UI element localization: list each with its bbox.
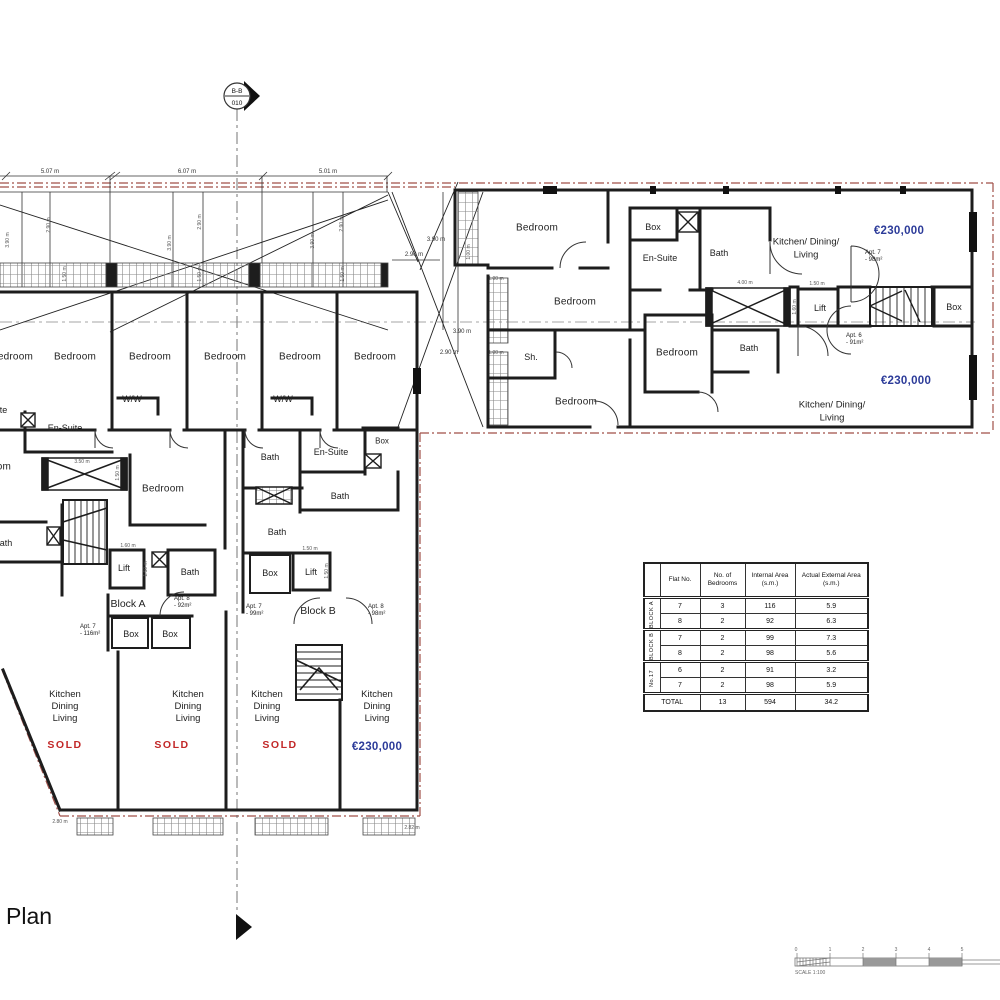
apt-label-block-b-8: Apt. 8 - 98m² xyxy=(368,604,385,618)
svg-text:4: 4 xyxy=(928,947,931,953)
scale-label: SCALE 1:100 xyxy=(795,970,826,976)
floor-plan-canvas: B-B 010 0 1 2 3 4 5 SCALE 1:100 5.07 m 6… xyxy=(0,0,1000,1000)
room-label-box: Box xyxy=(375,437,389,446)
room-label-bedroom: Bedroom xyxy=(0,352,33,363)
room-label-ensuite: En-Suite xyxy=(314,447,349,457)
dim-label: 2.90 m xyxy=(46,217,52,232)
dimension-lines xyxy=(0,172,458,352)
group-label-no17: No.17 xyxy=(644,662,660,694)
apt-label-block-a-7: Apt. 7 - 116m² xyxy=(80,624,100,638)
room-label-bath: Bath xyxy=(710,248,729,258)
left-wing-walls xyxy=(0,292,417,810)
svg-text:5: 5 xyxy=(961,947,964,953)
dim-label: 1.00 m xyxy=(488,350,503,356)
room-label-ensuite: En-Suite xyxy=(48,423,83,433)
room-label-ensuite: En-Suite xyxy=(0,405,7,415)
col-header-flat: Flat No. xyxy=(660,563,700,598)
plan-title: Plan xyxy=(6,903,52,930)
dim-label: 3.50 m xyxy=(74,459,89,465)
section-arrow-icon xyxy=(236,914,252,940)
col-header-external: Actual External Area (s.m.) xyxy=(795,563,868,598)
svg-text:0: 0 xyxy=(795,947,798,953)
group-label-block-a: BLOCK A xyxy=(644,598,660,630)
price-label: €230,000 xyxy=(881,375,931,387)
dim-label: 1.60 m xyxy=(120,543,135,549)
table-row: BLOCK B 7 2 99 7.3 xyxy=(644,630,868,646)
room-label-kitchen-dining-living: KitchenDiningLiving xyxy=(361,689,393,725)
table-row: 8 2 92 6.3 xyxy=(644,614,868,630)
dim-label: 1.00 m xyxy=(488,276,503,282)
room-label-lift: Lift xyxy=(305,567,317,577)
table-row: 8 2 98 5.6 xyxy=(644,646,868,662)
dim-label: 3.90 m xyxy=(453,329,471,335)
dim-label: 1.50 m xyxy=(809,281,824,287)
dim-label: 1.60 m xyxy=(792,299,798,314)
plan-linework: B-B 010 0 1 2 3 4 5 SCALE 1:100 xyxy=(0,0,1000,1000)
dim-label: 2.90 m xyxy=(339,216,345,231)
dim-label: 2.90 m xyxy=(405,252,423,258)
right-wing-hatch xyxy=(458,192,508,425)
section-marker: B-B 010 xyxy=(224,81,260,111)
room-label-bedroom: Bedroom xyxy=(129,352,171,363)
section-line xyxy=(0,109,975,913)
room-label-bedroom: Bedroom xyxy=(656,348,698,359)
dim-label: 3.90 m xyxy=(5,232,11,247)
room-label-bedroom: Bedroom xyxy=(0,462,11,473)
room-label-kitchen-dining-living: Kitchen/ Dining/Living xyxy=(799,400,866,425)
room-label-kitchen-dining-living: KitchenDiningLiving xyxy=(172,689,204,725)
apt-label-no17-7: Apt. 7 - 98m² xyxy=(865,250,882,264)
room-label-lift: Lift xyxy=(814,303,826,313)
room-label-bedroom: Bedroom xyxy=(204,352,246,363)
block-a-label: Block A xyxy=(110,598,145,610)
dim-label: 3.90 m xyxy=(310,233,316,248)
sold-badge: SOLD xyxy=(47,739,82,751)
col-header-bedrooms: No. of Bedrooms xyxy=(700,563,745,598)
room-label-bath: Bath xyxy=(181,567,200,577)
room-label-box: Box xyxy=(123,629,139,639)
col-header-internal: Internal Area (s.m.) xyxy=(745,563,795,598)
dim-label: 3.90 m xyxy=(167,235,173,250)
dim-label: 2.80 m xyxy=(52,819,67,825)
dim-label: 1.50 m xyxy=(324,563,330,578)
room-label-wardrobe: W/W xyxy=(273,394,293,404)
room-label-bedroom: Bedroom xyxy=(554,297,596,308)
room-label-wardrobe: W/W xyxy=(122,394,142,404)
room-label-bedroom: Bedroom xyxy=(516,223,558,234)
dim-label: 3.90 m xyxy=(427,237,445,243)
dim-label: 2.90 m xyxy=(197,214,203,229)
apt-label-block-b-7: Apt. 7 - 99m² xyxy=(246,604,263,618)
dim-label: 4.00 m xyxy=(737,280,752,286)
room-label-bath: Bath xyxy=(261,452,280,462)
dim-label: 1.50 m xyxy=(143,561,149,576)
apt-label-block-a-8: Apt. 8 - 92m² xyxy=(174,596,191,610)
room-label-bedroom: Bedroom xyxy=(555,397,597,408)
dim-label: 1.50 m xyxy=(197,266,203,281)
room-label-bath: Bath xyxy=(331,491,350,501)
room-label-bedroom: Bedroom xyxy=(142,484,184,495)
dim-label: 1.50 m xyxy=(115,465,121,480)
room-label-kitchen-dining-living: KitchenDiningLiving xyxy=(251,689,283,725)
group-label-block-b: BLOCK B xyxy=(644,630,660,662)
room-label-box: Box xyxy=(162,629,178,639)
room-label-box: Box xyxy=(262,568,278,578)
svg-text:3: 3 xyxy=(895,947,898,953)
room-label-bath: Bath xyxy=(0,538,12,548)
table-row: No.17 6 2 91 3.2 xyxy=(644,662,868,678)
room-label-bedroom: Bedroom xyxy=(279,352,321,363)
dim-label: 1.50 m xyxy=(340,266,346,281)
room-label-box: Box xyxy=(946,302,962,312)
construction-lines xyxy=(0,182,483,427)
dim-label: 1.50 m xyxy=(302,546,317,552)
room-label-bath: Bath xyxy=(268,527,287,537)
sold-badge: SOLD xyxy=(154,739,189,751)
table-row: 7 2 98 5.9 xyxy=(644,678,868,694)
svg-text:2: 2 xyxy=(862,947,865,953)
dim-label: 2.82 m xyxy=(404,825,419,831)
room-label-bedroom: Bedroom xyxy=(54,352,96,363)
room-label-box: Box xyxy=(645,222,661,232)
svg-text:1: 1 xyxy=(829,947,832,953)
dim-label: 6.07 m xyxy=(178,169,196,175)
section-marker-sheet: 010 xyxy=(232,100,243,107)
block-b-label: Block B xyxy=(300,605,336,617)
room-label-kitchen-dining-living: Kitchen/ Dining/Living xyxy=(773,237,840,262)
table-row: BLOCK A 7 3 116 5.9 xyxy=(644,598,868,614)
room-label-bath: Bath xyxy=(740,343,759,353)
apt-label-no17-6: Apt. 6 - 91m² xyxy=(846,333,863,347)
price-label: €230,000 xyxy=(874,225,924,237)
room-label-ensuite: En-Suite xyxy=(643,253,678,263)
table-corner-cell xyxy=(644,563,660,598)
dim-label: 1.00 m xyxy=(466,244,472,259)
dim-label: 5.07 m xyxy=(41,169,59,175)
room-label-shower: Sh. xyxy=(524,352,538,362)
sold-badge: SOLD xyxy=(262,739,297,751)
scale-bar: 0 1 2 3 4 5 SCALE 1:100 xyxy=(795,947,1000,976)
section-marker-code: B-B xyxy=(232,88,243,95)
dim-label: 1.50 m xyxy=(62,266,68,281)
table-total-row: TOTAL 13 594 34.2 xyxy=(644,694,868,712)
room-label-lift: Lift xyxy=(118,563,130,573)
dim-label: 2.90 m xyxy=(440,350,458,356)
room-label-bedroom: Bedroom xyxy=(354,352,396,363)
price-label: €230,000 xyxy=(352,741,402,753)
dim-label: 5.01 m xyxy=(319,169,337,175)
area-schedule-table: Flat No. No. of Bedrooms Internal Area (… xyxy=(643,562,869,712)
room-label-kitchen-dining-living: KitchenDiningLiving xyxy=(49,689,81,725)
